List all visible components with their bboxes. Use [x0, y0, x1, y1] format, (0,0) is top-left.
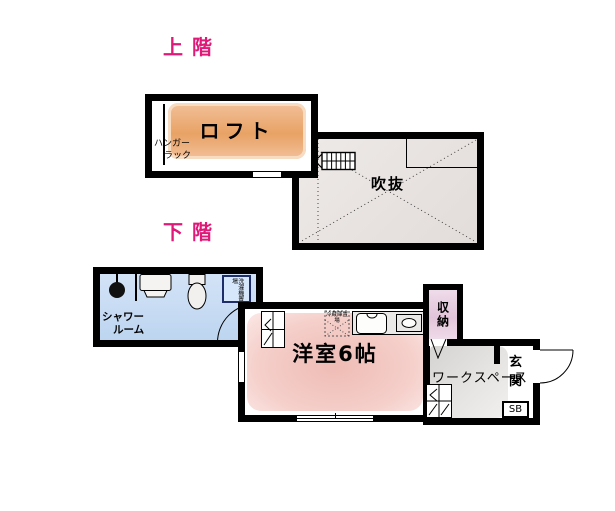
stairs-icon-lower [261, 311, 285, 348]
room-loft: ロフト ハンガー ラック [145, 94, 318, 178]
void-label: 吹抜 [299, 173, 477, 194]
main-room-bottom-window-icon [297, 415, 373, 422]
stairs-icon-upper [313, 149, 357, 173]
loft-window-icon [253, 171, 281, 178]
closet-label: 収納 [435, 301, 452, 329]
room-main: 洋室6帖 冷蔵庫置場 [238, 302, 432, 422]
upper-floor-label: 上階 [163, 31, 221, 60]
kitchen-counter [352, 311, 425, 335]
room-workspace-entrance: ワークスペース 玄関 SB [423, 339, 540, 425]
shower-room-label: シャワー ルーム [102, 311, 144, 337]
partition-wall [494, 339, 500, 364]
fridge-placement: 冷蔵庫置場 [324, 310, 350, 337]
fridge-label: 冷蔵庫置場 [324, 312, 350, 324]
vanity-sink-icon [139, 274, 173, 300]
folding-door-icon [430, 339, 447, 359]
washing-machine-box: 洗濯機置場 [222, 275, 251, 303]
toilet-icon [185, 274, 209, 311]
kitchen-sink-icon [356, 313, 388, 334]
shoe-box-label: SB [509, 404, 522, 415]
hanger-rack-label: ハンガー ラック [154, 139, 191, 162]
shoe-box: SB [502, 401, 529, 418]
shower-head-icon [102, 274, 132, 304]
floor-plan: 上階 吹抜 ロフト ハンガー ラック 下階 [0, 0, 615, 511]
stairs-icon-entry [426, 384, 452, 418]
shower-pole-icon [135, 274, 137, 301]
entrance-door-arc-icon [533, 347, 575, 387]
entrance-label: 玄関 [509, 351, 533, 389]
void-open-rail-outline [406, 139, 478, 168]
main-room-left-window-icon [238, 352, 245, 382]
washing-machine-label: 洗濯機置場 [230, 278, 243, 302]
room-closet: 収納 [423, 284, 463, 346]
lower-floor-label: 下階 [163, 216, 221, 245]
stove-burner-icon [396, 314, 422, 332]
